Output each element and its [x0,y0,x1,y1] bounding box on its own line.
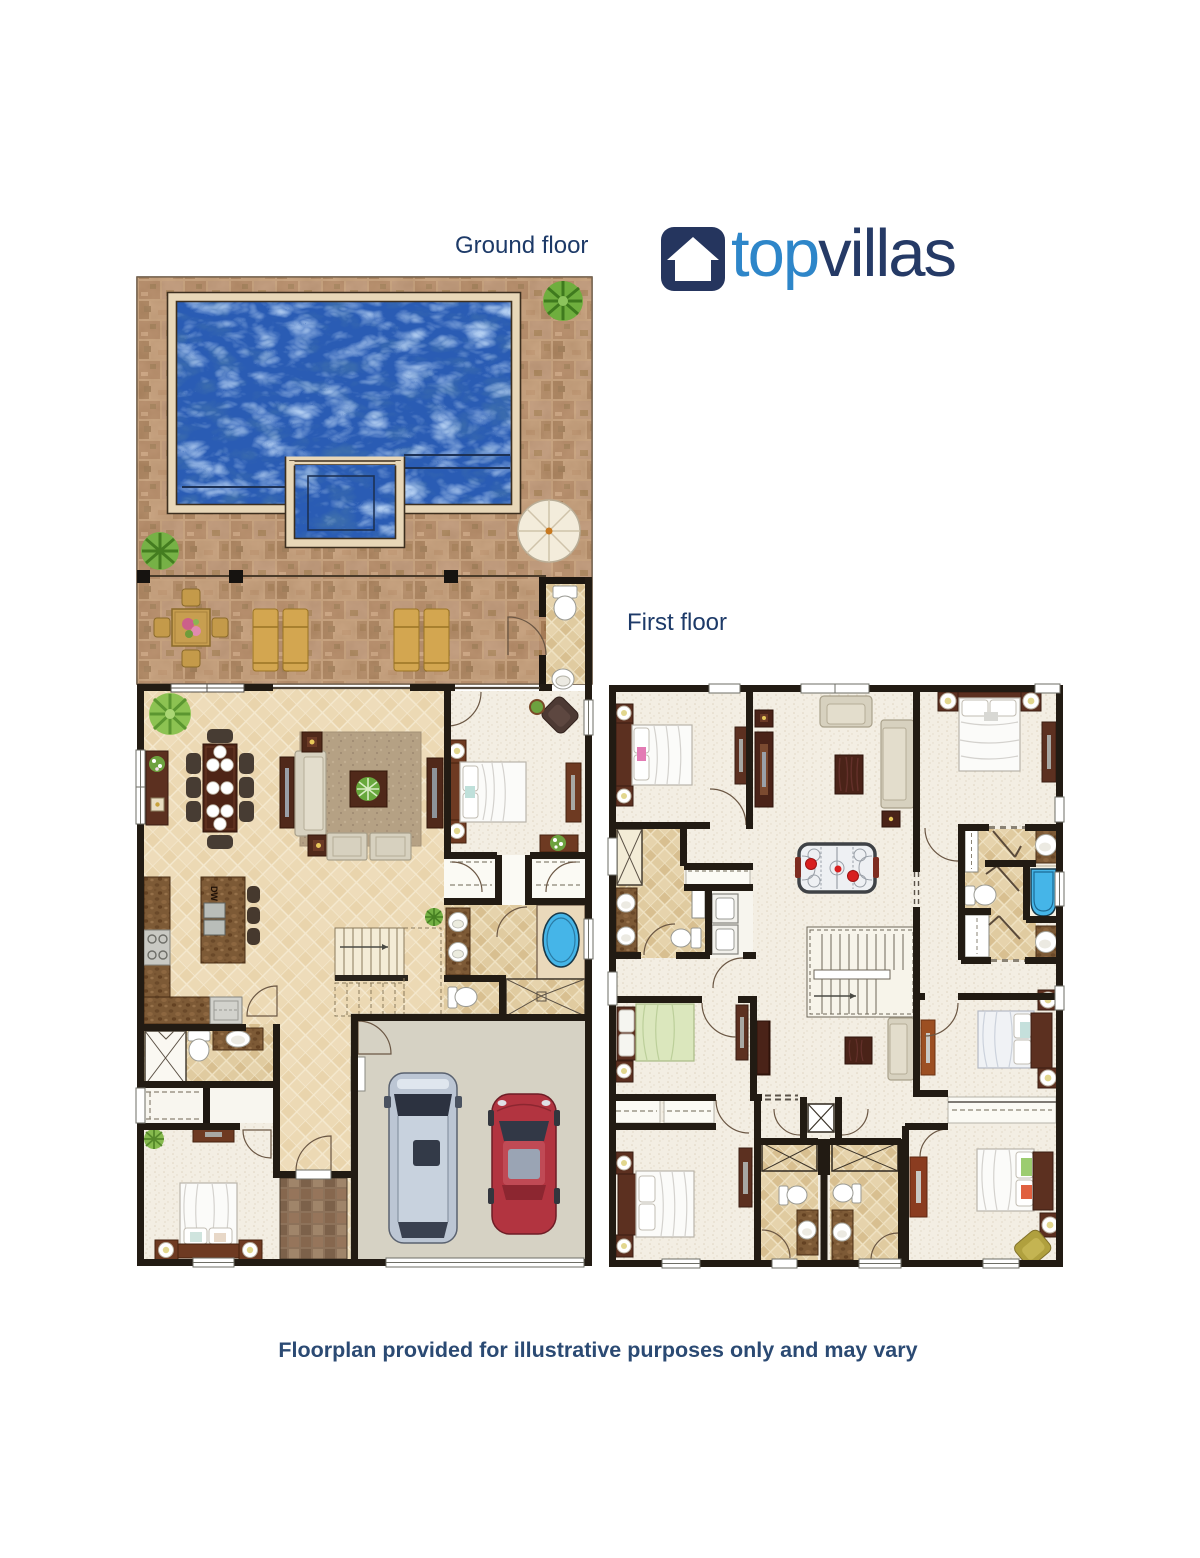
svg-text:DW: DW [209,886,219,901]
svg-text:topvillas: topvillas [731,216,956,291]
svg-text:First floor: First floor [627,609,727,636]
svg-text:Floorplan provided for illustr: Floorplan provided for illustrative purp… [278,1338,917,1362]
svg-text:Ground floor: Ground floor [455,232,588,259]
